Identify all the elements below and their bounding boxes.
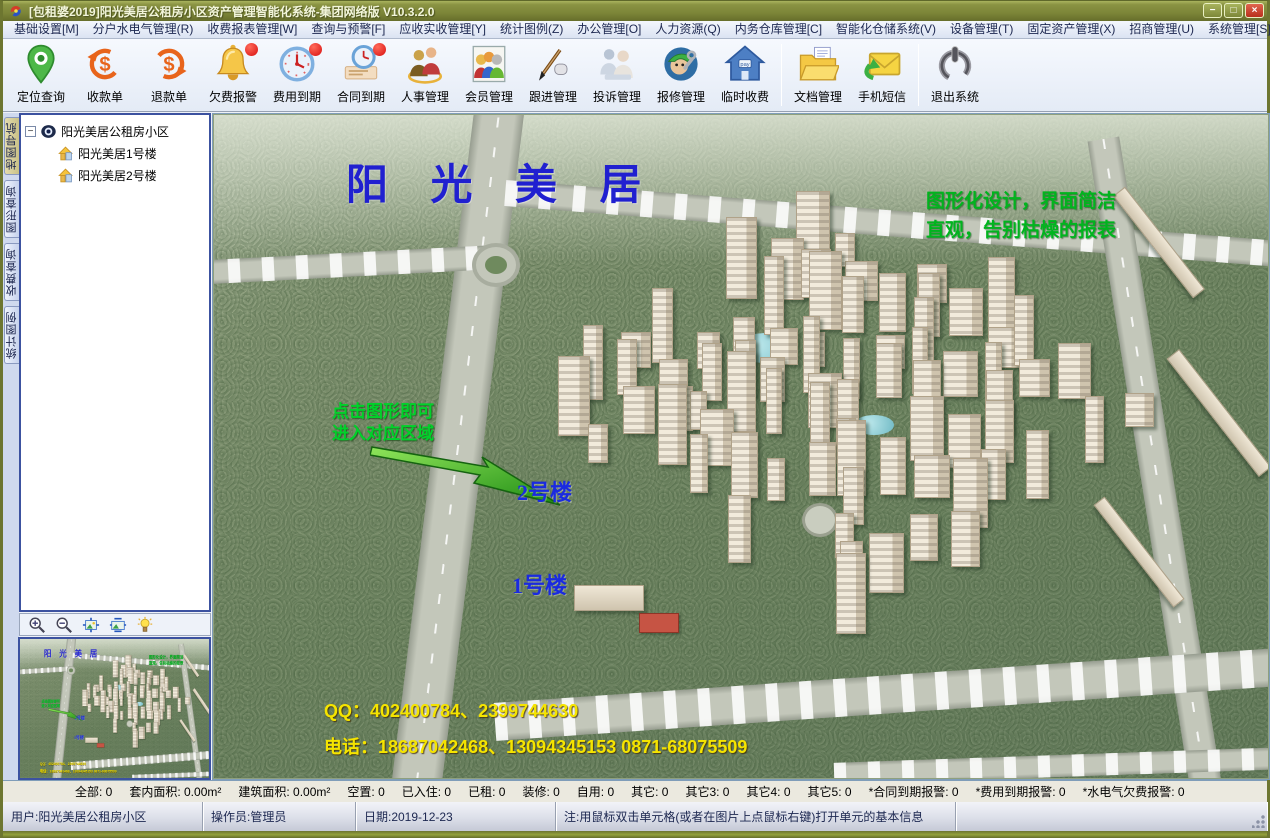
status-user: 用户:阳光美居公租房小区 xyxy=(3,802,203,831)
building-tree-panel: − 阳光美居公租房小区 阳光美居1号楼阳光美居2号楼 xyxy=(19,113,211,612)
svg-text:pay: pay xyxy=(740,62,749,68)
building xyxy=(949,288,983,336)
community-title-text: 阳 光 美 居 xyxy=(44,647,100,660)
status-date: 日期:2019-12-23 xyxy=(356,802,556,831)
stat-2: 套内面积: 0.00m² xyxy=(129,783,221,800)
stat-11: 其它4: 0 xyxy=(747,783,791,800)
building xyxy=(910,514,938,561)
toolbar-button-label: 跟进管理 xyxy=(529,88,577,105)
building xyxy=(139,727,145,740)
toolbar-button-label: 欠费报警 xyxy=(209,88,257,105)
building xyxy=(120,692,123,706)
toolbar-separator xyxy=(918,44,919,106)
minimize-button[interactable]: − xyxy=(1203,3,1222,18)
window-title: [包租婆2019]阳光美居公租房小区资产管理智能化系统-集团网络版 V10.3.… xyxy=(29,3,434,20)
stat-8: 自用: 0 xyxy=(577,783,614,800)
refund-out-icon: $ xyxy=(146,42,192,86)
building xyxy=(134,673,138,685)
toolbar-button-label: 退出系统 xyxy=(931,88,979,105)
building xyxy=(147,710,154,719)
stat-12: 其它5: 0 xyxy=(808,783,852,800)
building xyxy=(146,723,151,733)
building xyxy=(153,722,158,734)
stat-7: 装修: 0 xyxy=(522,783,559,800)
slogan-text: 图形化设计，界面简洁 直观，告别枯燥的报表 xyxy=(926,187,1196,245)
building xyxy=(558,356,590,436)
toolbar-button-9[interactable]: 跟进管理 xyxy=(521,42,585,108)
status-spacer xyxy=(956,802,1267,831)
toolbar-button-label: 投诉管理 xyxy=(593,88,641,105)
building xyxy=(809,442,836,496)
building xyxy=(185,697,190,704)
building xyxy=(133,731,138,748)
building xyxy=(943,351,978,397)
people-group-icon xyxy=(466,42,512,86)
menu-bar: 基础设置[M]分户水电气管理(R)收费报表管理[W]查询与预警[F]应收实收管理… xyxy=(3,21,1267,39)
building xyxy=(120,669,124,686)
building xyxy=(1085,396,1104,463)
building xyxy=(731,432,758,498)
building xyxy=(113,660,119,677)
building xyxy=(652,288,673,363)
red-roof-building xyxy=(97,743,104,747)
building xyxy=(140,687,145,699)
toolbar-button-11[interactable]: 报修管理 xyxy=(649,42,713,108)
menu-item-13[interactable]: 招商管理(U) xyxy=(1122,21,1201,38)
stat-15: *水电气欠费报警: 0 xyxy=(1083,783,1185,800)
roundabout xyxy=(67,666,76,675)
minimap-scene[interactable]: 阳 光 美 居 图形化设计，界面简洁 直观，告别枯燥的报表 点击图形即可 进入对… xyxy=(20,639,211,778)
toolbar-button-label: 费用到期 xyxy=(273,88,321,105)
toolbar: 定位查询$收款单$退款单欠费报警费用到期合同到期人事管理会员管理跟进管理投诉管理… xyxy=(3,39,1267,112)
building xyxy=(836,553,866,634)
stat-10: 其它3: 0 xyxy=(685,783,729,800)
roundabout xyxy=(472,243,520,287)
menu-item-14[interactable]: 系统管理[S] xyxy=(1201,21,1270,38)
toolbar-button-6[interactable]: 合同到期 xyxy=(329,42,393,108)
building xyxy=(951,511,980,567)
toolbar-button-14[interactable]: 手机短信 xyxy=(850,42,914,108)
building xyxy=(842,276,864,333)
building xyxy=(766,368,782,434)
house-icon xyxy=(57,145,74,162)
building-1-label: 1号楼 xyxy=(74,734,84,741)
app-logo-icon xyxy=(9,4,23,18)
menu-item-10[interactable]: 智能化仓储系统(V) xyxy=(829,21,943,38)
building xyxy=(869,533,904,593)
building xyxy=(767,458,785,501)
slab xyxy=(192,688,210,715)
building xyxy=(120,711,123,720)
building xyxy=(910,396,944,461)
status-operator: 操作员:管理员 xyxy=(203,802,356,831)
tree-root-community[interactable]: − 阳光美居公租房小区 xyxy=(23,120,207,142)
zoom-out-icon[interactable] xyxy=(55,616,73,634)
toolbar-button-label: 人事管理 xyxy=(401,88,449,105)
building-1-label[interactable]: 1号楼 xyxy=(512,568,567,600)
menu-item-2[interactable]: 分户水电气管理(R) xyxy=(86,21,201,38)
phone-contact-text: 电话：18687042468、13094345153 0871-68075509 xyxy=(324,733,747,759)
side-tab-strip: 地图导航图形查询收费查询统计图例 xyxy=(3,113,19,780)
alert-badge-icon xyxy=(373,43,386,56)
close-button[interactable]: × xyxy=(1245,3,1264,18)
toolbar-button-label: 临时收费 xyxy=(721,88,769,105)
toolbar-button-label: 手机短信 xyxy=(858,88,906,105)
location-pin-icon xyxy=(18,42,64,86)
consult-icon xyxy=(594,42,640,86)
menu-item-9[interactable]: 内务仓库管理[C] xyxy=(728,21,829,38)
receipt-in-icon: $ xyxy=(82,42,128,86)
slab xyxy=(1167,349,1268,477)
building xyxy=(876,343,902,398)
building xyxy=(988,257,1015,331)
toolbar-button-label: 报修管理 xyxy=(657,88,705,105)
building xyxy=(113,719,117,733)
toolbar-button-12[interactable]: pay临时收费 xyxy=(713,42,777,108)
status-bar: 用户:阳光美居公租房小区 操作员:管理员 日期:2019-12-23 注:用鼠标… xyxy=(3,802,1267,831)
stat-9: 其它: 0 xyxy=(631,783,668,800)
building xyxy=(100,695,105,712)
stat-6: 已租: 0 xyxy=(468,783,505,800)
community-title-text: 阳 光 美 居 xyxy=(346,151,658,212)
svg-text:$: $ xyxy=(163,54,174,76)
side-tab-graphic-query[interactable]: 图形查询 xyxy=(4,180,19,238)
house-icon xyxy=(57,167,74,184)
folder-doc-icon xyxy=(795,42,841,86)
toolbar-button-4[interactable]: 欠费报警 xyxy=(201,42,265,108)
menu-item-12[interactable]: 固定资产管理(X) xyxy=(1020,21,1122,38)
road h xyxy=(494,647,1268,741)
building xyxy=(879,273,906,332)
toolbar-button-8[interactable]: 会员管理 xyxy=(457,42,521,108)
tree-item-label: 阳光美居1号楼 xyxy=(78,145,157,162)
building xyxy=(728,495,751,563)
click-hint-text: 点击图形即可 进入对应区域 xyxy=(332,401,434,445)
minimap[interactable]: 阳 光 美 居 图形化设计，界面简洁 直观，告别枯燥的报表 点击图形即可 进入对… xyxy=(18,637,211,780)
community-eye-icon xyxy=(40,123,57,140)
stat-3: 建筑面积: 0.00m² xyxy=(238,783,330,800)
alert-badge-icon xyxy=(309,43,322,56)
window-bottom-frame xyxy=(3,831,1267,838)
side-tab-label: 收费查询 xyxy=(4,248,20,296)
menu-item-7[interactable]: 办公管理[O] xyxy=(570,21,648,38)
building xyxy=(167,705,171,719)
house-pay-icon: pay xyxy=(722,42,768,86)
minimap-toolbar xyxy=(19,613,211,636)
toolbar-separator xyxy=(781,44,782,106)
menu-item-3[interactable]: 收费报表管理[W] xyxy=(200,21,304,38)
side-tab-label: 地图导航 xyxy=(4,122,20,170)
building xyxy=(764,256,784,335)
building xyxy=(141,706,146,718)
slogan-text: 图形化设计，界面简洁 直观，告别枯燥的报表 xyxy=(149,654,198,666)
side-tab-label: 图形查询 xyxy=(4,185,20,233)
maximize-button[interactable]: □ xyxy=(1224,3,1243,18)
red-roof-building xyxy=(639,613,679,633)
alert-badge-icon xyxy=(245,43,258,56)
tree-collapse-icon[interactable]: − xyxy=(25,126,36,137)
building xyxy=(1014,295,1034,366)
building xyxy=(140,672,145,684)
toolbar-button-label: 会员管理 xyxy=(465,88,513,105)
stat-1: 全部: 0 xyxy=(75,783,112,800)
title-bar: [包租婆2019]阳光美居公租房小区资产管理智能化系统-集团网络版 V10.3.… xyxy=(3,1,1267,21)
building xyxy=(726,217,757,299)
side-tab-label: 统计图例 xyxy=(4,311,20,359)
side-tab-fee-query[interactable]: 收费查询 xyxy=(4,243,19,301)
toolbar-button-2[interactable]: $收款单 xyxy=(73,42,137,108)
toolbar-button-label: 文档管理 xyxy=(794,88,842,105)
toolbar-button-label: 退款单 xyxy=(151,88,187,105)
zoom-in-icon[interactable] xyxy=(28,616,46,634)
toolbar-button-label: 合同到期 xyxy=(337,88,385,105)
toolbar-button-15[interactable]: 退出系统 xyxy=(923,42,987,108)
building xyxy=(152,688,158,698)
qq-contact-text: QQ：402400784、2399744630 xyxy=(40,761,86,766)
building xyxy=(173,687,179,699)
building xyxy=(94,696,100,706)
menu-item-1[interactable]: 基础设置[M] xyxy=(7,21,86,38)
community-aerial-view[interactable]: 阳 光 美 居 图形化设计，界面简洁 直观，告别枯燥的报表 点击图形即可 进入对… xyxy=(214,115,1268,778)
side-tab-statistics[interactable]: 统计图例 xyxy=(4,306,19,364)
building xyxy=(588,424,608,463)
toolbar-button-13[interactable]: 文档管理 xyxy=(786,42,850,108)
status-note: 注:用鼠标双击单元格(或者在图片上点鼠标右键)打开单元的基本信息 xyxy=(556,802,956,831)
toolbar-button-1[interactable]: 定位查询 xyxy=(9,42,73,108)
tree-item-building-1[interactable]: 阳光美居1号楼 xyxy=(23,142,207,164)
building xyxy=(690,434,708,493)
building xyxy=(153,675,159,685)
tree-item-building-2[interactable]: 阳光美居2号楼 xyxy=(23,164,207,186)
qq-contact-text: QQ：402400784、2399744630 xyxy=(324,697,578,723)
building xyxy=(914,455,950,498)
stat-14: *费用到期报警: 0 xyxy=(976,783,1066,800)
building xyxy=(1019,359,1050,397)
building xyxy=(623,386,655,434)
pen-icon xyxy=(530,42,576,86)
stretch-image-icon[interactable] xyxy=(109,616,127,634)
stat-5: 已入住: 0 xyxy=(402,783,451,800)
circular-plaza xyxy=(802,503,838,537)
people-two-icon xyxy=(402,42,448,86)
toolbar-button-10[interactable]: 投诉管理 xyxy=(585,42,649,108)
building xyxy=(114,705,119,719)
main-map-view: 阳 光 美 居 图形化设计，界面简洁 直观，告别枯燥的报表 点击图形即可 进入对… xyxy=(212,113,1270,780)
toolbar-button-label: 收款单 xyxy=(87,88,123,105)
tree-root-label: 阳光美居公租房小区 xyxy=(61,123,169,140)
toolbar-button-label: 定位查询 xyxy=(17,88,65,105)
building xyxy=(658,384,687,465)
repairman-icon xyxy=(658,42,704,86)
building xyxy=(1058,343,1091,399)
building-2-label: 2号楼 xyxy=(75,714,85,721)
building xyxy=(106,706,109,718)
menu-item-8[interactable]: 人力资源(Q) xyxy=(648,21,727,38)
app-window: [包租婆2019]阳光美居公租房小区资产管理智能化系统-集团网络版 V10.3.… xyxy=(0,0,1270,838)
menu-item-11[interactable]: 设备管理(T) xyxy=(943,21,1020,38)
toolbar-button-7[interactable]: 人事管理 xyxy=(393,42,457,108)
building xyxy=(166,690,172,698)
slab xyxy=(574,585,644,611)
resize-grip[interactable] xyxy=(1252,815,1265,828)
fit-image-icon[interactable] xyxy=(82,616,100,634)
side-tab-map-nav[interactable]: 地图导航 xyxy=(4,117,19,175)
menu-item-6[interactable]: 统计图例(Z) xyxy=(493,21,570,38)
toolbar-button-3[interactable]: $退款单 xyxy=(137,42,201,108)
bulb-icon[interactable] xyxy=(136,616,154,634)
building xyxy=(1026,430,1049,499)
building xyxy=(880,437,906,495)
building xyxy=(1125,393,1154,427)
phone-contact-text: 电话：18687042468、13094345153 0871-68075509 xyxy=(40,768,117,773)
building xyxy=(178,698,181,712)
sms-icon xyxy=(859,42,905,86)
power-icon xyxy=(932,42,978,86)
tree-item-label: 阳光美居2号楼 xyxy=(78,167,157,184)
stat-4: 空置: 0 xyxy=(347,783,384,800)
stats-bar: 全部: 0套内面积: 0.00m²建筑面积: 0.00m²空置: 0已入住: 0… xyxy=(3,780,1267,802)
svg-text:$: $ xyxy=(99,54,110,76)
toolbar-button-5[interactable]: 费用到期 xyxy=(265,42,329,108)
road h xyxy=(71,750,211,770)
menu-item-4[interactable]: 查询与预警[F] xyxy=(304,21,392,38)
building xyxy=(88,704,92,712)
menu-item-5[interactable]: 应收实收管理[Y] xyxy=(392,21,493,38)
slab xyxy=(85,737,98,742)
building-2-label[interactable]: 2号楼 xyxy=(517,475,572,507)
stat-13: *合同到期报警: 0 xyxy=(869,783,959,800)
building xyxy=(99,675,103,691)
minimap-view: 阳 光 美 居 图形化设计，界面简洁 直观，告别枯燥的报表 点击图形即可 进入对… xyxy=(20,639,211,778)
